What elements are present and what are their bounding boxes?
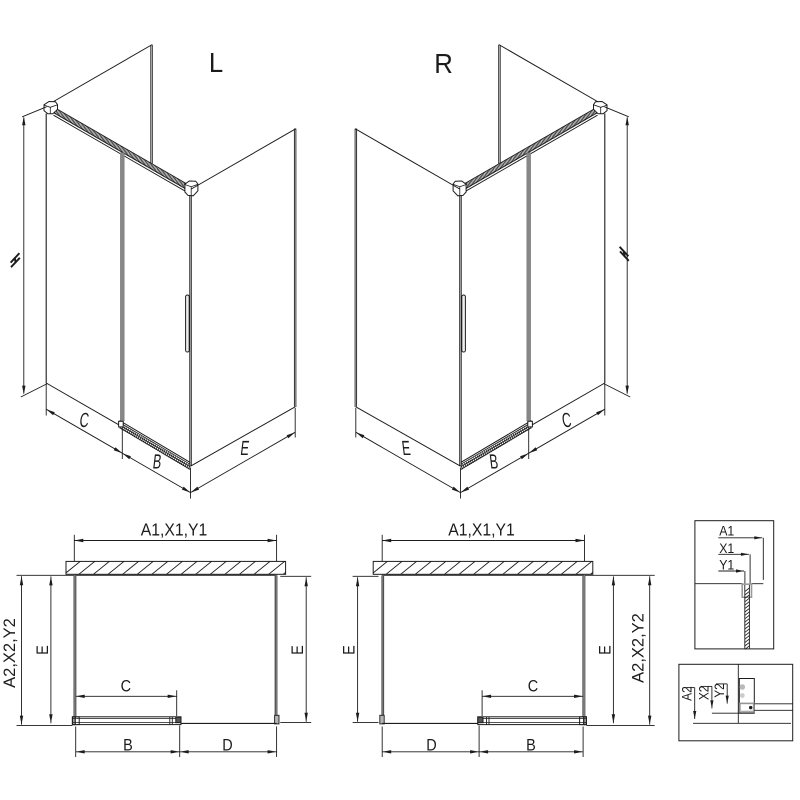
svg-text:E: E (341, 645, 359, 655)
svg-text:A2,X2,Y2: A2,X2,Y2 (0, 618, 19, 688)
svg-text:D: D (222, 737, 232, 755)
svg-text:D: D (426, 737, 436, 755)
svg-text:Y1: Y1 (719, 557, 734, 573)
svg-text:X2: X2 (696, 686, 712, 701)
svg-text:R: R (434, 48, 453, 79)
svg-text:A1,X1,Y1: A1,X1,Y1 (448, 520, 514, 540)
svg-text:B: B (123, 737, 133, 755)
svg-text:C: C (121, 677, 131, 695)
svg-text:X1: X1 (719, 540, 734, 556)
svg-text:A1,X1,Y1: A1,X1,Y1 (141, 520, 207, 540)
svg-text:A2: A2 (679, 686, 695, 701)
svg-text:E: E (597, 645, 615, 655)
svg-text:A2,X2,Y2: A2,X2,Y2 (628, 613, 647, 683)
svg-text:C: C (528, 677, 538, 695)
svg-text:B: B (526, 737, 536, 755)
svg-text:L: L (209, 47, 223, 78)
svg-text:E: E (34, 645, 52, 655)
svg-text:E: E (289, 645, 307, 655)
svg-text:Y2: Y2 (711, 683, 727, 698)
svg-text:A1: A1 (719, 523, 734, 539)
